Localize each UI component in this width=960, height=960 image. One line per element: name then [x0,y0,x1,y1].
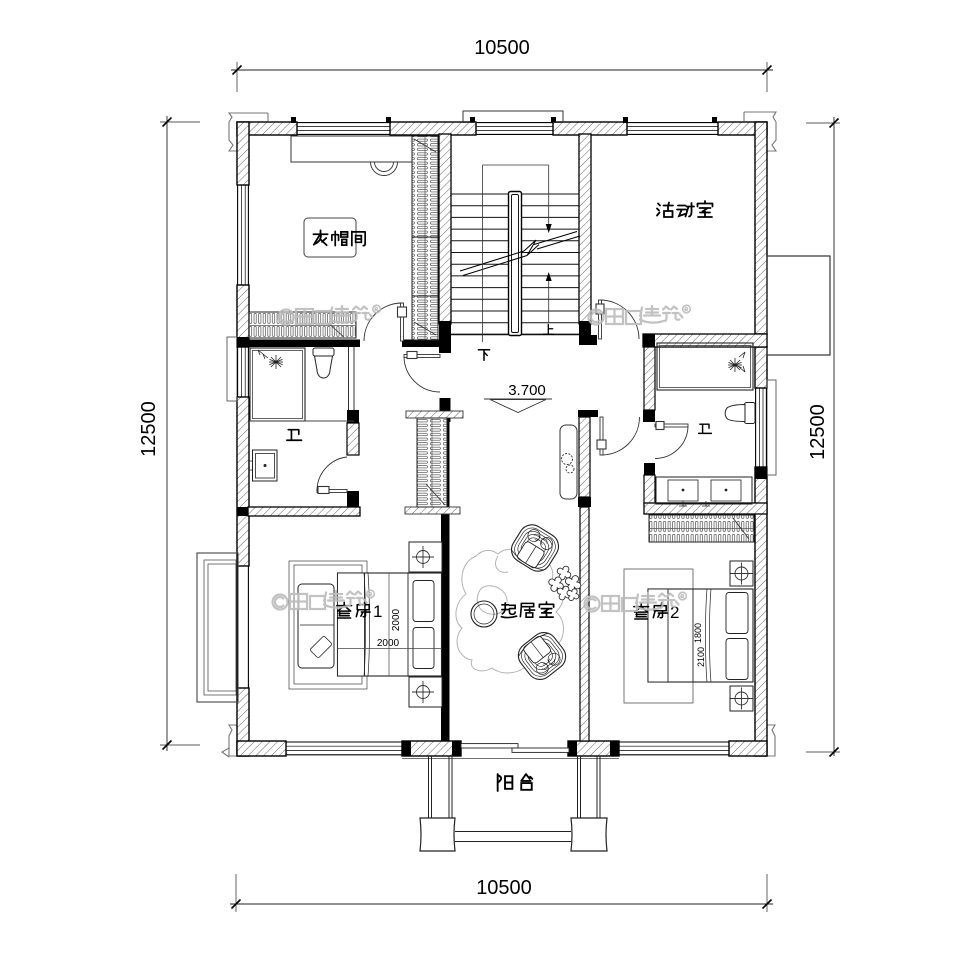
svg-text:12500: 12500 [138,401,160,457]
svg-text:3.700: 3.700 [508,382,546,399]
svg-text:2000: 2000 [377,638,400,649]
svg-text:10500: 10500 [474,37,530,59]
svg-text:2100: 2100 [696,647,706,667]
svg-text:2000: 2000 [391,608,402,631]
svg-text:1800: 1800 [693,623,703,643]
svg-text:12500: 12500 [807,404,829,460]
svg-text:1: 1 [373,602,382,621]
svg-text:10500: 10500 [476,877,532,899]
